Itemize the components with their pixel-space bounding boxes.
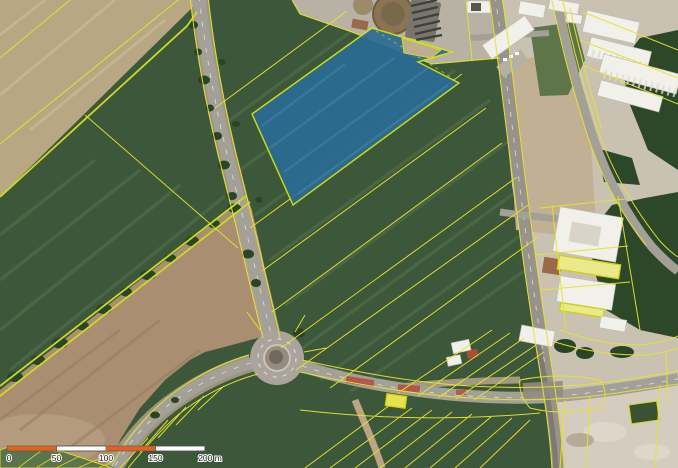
roundabout <box>250 331 304 385</box>
scale-label: 50 <box>52 453 62 463</box>
dirt-blotch <box>566 433 594 447</box>
scale-label: 0 <box>7 453 12 463</box>
scale-label: 150 <box>148 453 162 463</box>
scale-label: 200 m <box>198 453 222 463</box>
scale-segment <box>106 446 156 451</box>
cadastral-orthophoto-map[interactable]: 0 50 100 150 200 m <box>0 0 678 468</box>
scale-segment <box>7 446 57 451</box>
hedge-parcel <box>629 401 659 424</box>
scale-segment <box>57 446 107 451</box>
aerial-map-viewport[interactable]: 0 50 100 150 200 m <box>0 0 678 468</box>
scale-label: 100 <box>99 453 113 463</box>
dirt-blotch <box>634 444 670 460</box>
scale-segment <box>156 446 206 451</box>
